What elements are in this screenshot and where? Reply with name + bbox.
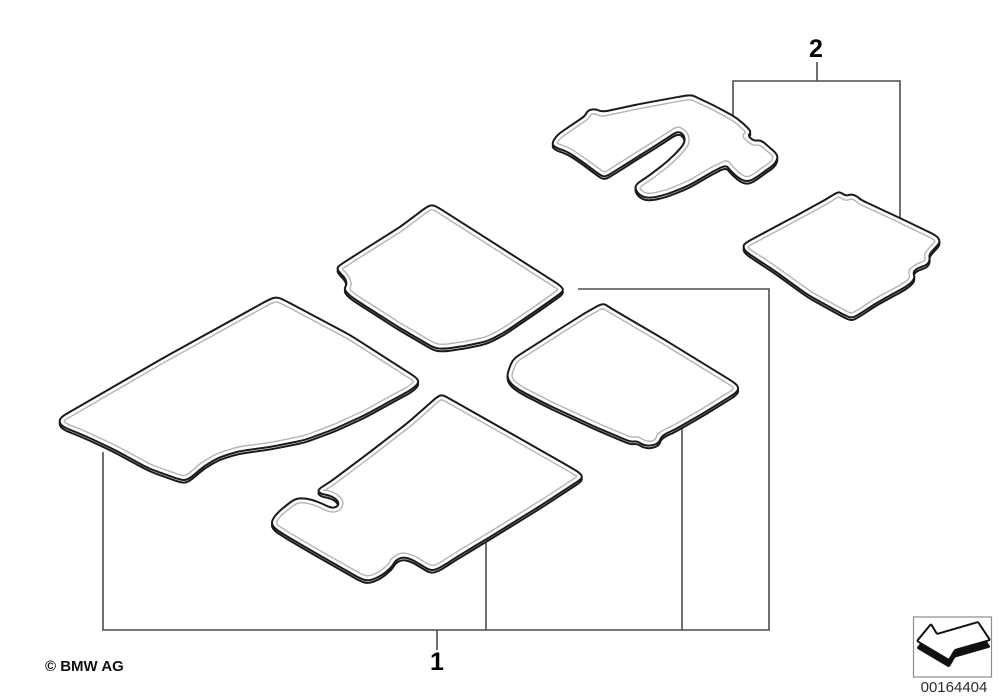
copyright-text: © BMW AG <box>45 658 124 675</box>
callout-label-1[interactable]: 1 <box>415 650 459 675</box>
mat-front-center[interactable] <box>338 205 563 351</box>
mat-rear-bench[interactable] <box>553 95 778 200</box>
diagram-artwork <box>0 0 1000 700</box>
image-number: 00164404 <box>911 679 997 696</box>
parts-diagram-canvas: 2 1 © BMW AG 00164404 <box>0 0 1000 700</box>
mat-front-right[interactable] <box>508 304 739 448</box>
mat-rear-right[interactable] <box>744 192 940 320</box>
mat-front-long-left[interactable] <box>60 298 419 483</box>
direction-arrow-icon <box>914 617 992 677</box>
callout-label-2[interactable]: 2 <box>794 37 838 62</box>
